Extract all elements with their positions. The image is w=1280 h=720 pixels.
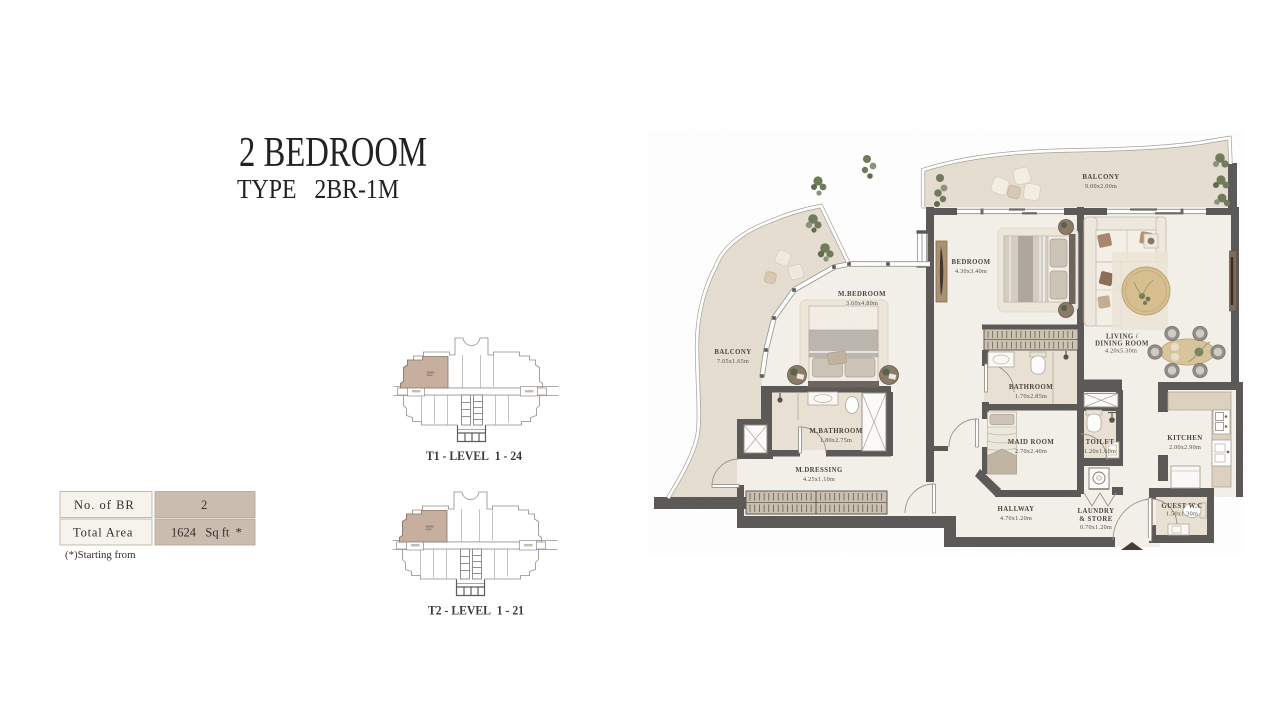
svg-text:GUEST W.C: GUEST W.C — [1161, 503, 1202, 510]
svg-text:1.20x1.60m: 1.20x1.60m — [1084, 448, 1116, 455]
svg-text:2.00x2.90m: 2.00x2.90m — [1169, 444, 1201, 451]
svg-text:BALCONY: BALCONY — [714, 349, 751, 356]
svg-text:TOILET: TOILET — [1086, 439, 1115, 446]
svg-text:0.70x1.20m: 0.70x1.20m — [1080, 524, 1112, 531]
svg-text:M.DRESSING: M.DRESSING — [795, 467, 843, 474]
svg-text:4.30x3.40m: 4.30x3.40m — [955, 268, 987, 275]
svg-text:HALLWAY: HALLWAY — [997, 506, 1034, 513]
svg-text:9.00x2.00m: 9.00x2.00m — [1085, 183, 1117, 190]
svg-text:1.70x2.85m: 1.70x2.85m — [1015, 393, 1047, 400]
svg-text:T1 - LEVEL 1 - 24: T1 - LEVEL 1 - 24 — [426, 449, 523, 463]
svg-text:1.50x1.30m: 1.50x1.30m — [1166, 511, 1198, 518]
svg-text:1.80x2.75m: 1.80x2.75m — [820, 437, 852, 444]
svg-text:2.70x2.40m: 2.70x2.40m — [1015, 448, 1047, 455]
svg-text:2: 2 — [201, 498, 207, 512]
svg-text:3.60x4.80m: 3.60x4.80m — [846, 300, 878, 307]
svg-text:1624 Sq ft *: 1624 Sq ft * — [171, 526, 242, 540]
svg-text:BATHROOM: BATHROOM — [1009, 384, 1053, 391]
svg-text:LAUNDRY: LAUNDRY — [1078, 508, 1115, 515]
svg-text:7.05x1.65m: 7.05x1.65m — [717, 358, 749, 365]
svg-text:No. of BR: No. of BR — [74, 498, 135, 512]
svg-text:KITCHEN: KITCHEN — [1167, 435, 1202, 442]
svg-text:M.BEDROOM: M.BEDROOM — [838, 291, 886, 298]
svg-text:4.25x1.10m: 4.25x1.10m — [803, 476, 835, 483]
svg-text:DINING ROOM: DINING ROOM — [1095, 341, 1149, 348]
svg-text:4.70x1.20m: 4.70x1.20m — [1000, 515, 1032, 522]
svg-text:T2 - LEVEL 1 - 21: T2 - LEVEL 1 - 21 — [428, 604, 524, 618]
svg-text:(*)Starting from: (*)Starting from — [65, 549, 136, 561]
svg-text:MAID ROOM: MAID ROOM — [1008, 439, 1055, 446]
svg-text:BALCONY: BALCONY — [1082, 174, 1119, 181]
svg-text:& STORE: & STORE — [1079, 516, 1112, 523]
svg-text:4.20x5.30m: 4.20x5.30m — [1105, 348, 1137, 355]
svg-text:M.BATHROOM: M.BATHROOM — [809, 428, 862, 435]
svg-text:LIVING /: LIVING / — [1106, 334, 1138, 341]
svg-text:TYPE 2BR-1M: TYPE 2BR-1M — [237, 174, 399, 204]
svg-text:BEDROOM: BEDROOM — [951, 259, 990, 266]
svg-text:Total Area: Total Area — [73, 526, 133, 540]
svg-text:2 BEDROOM: 2 BEDROOM — [239, 130, 427, 176]
